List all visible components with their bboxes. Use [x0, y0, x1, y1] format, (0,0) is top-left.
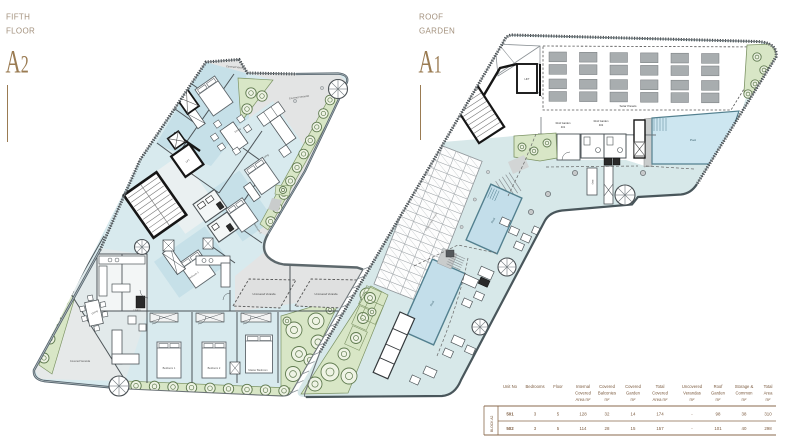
- svg-text:Unit No: Unit No: [503, 384, 518, 389]
- svg-text:Roof Garden: Roof Garden: [556, 121, 571, 125]
- svg-text:Area m²: Area m²: [653, 397, 668, 402]
- svg-text:3: 3: [534, 412, 537, 417]
- svg-text:Common: Common: [736, 390, 754, 395]
- svg-text:Balconies: Balconies: [598, 390, 616, 395]
- svg-text:5: 5: [557, 412, 560, 417]
- svg-text:Living: Living: [134, 308, 141, 312]
- svg-text:157: 157: [656, 426, 664, 431]
- svg-text:Garden: Garden: [626, 390, 641, 395]
- svg-text:502: 502: [506, 426, 514, 431]
- svg-text:Pool: Pool: [690, 138, 696, 142]
- svg-text:Covered: Covered: [652, 390, 668, 395]
- svg-text:Area: Area: [764, 390, 774, 395]
- svg-text:m²: m²: [766, 397, 771, 402]
- svg-text:m²: m²: [716, 397, 721, 402]
- svg-text:38: 38: [742, 412, 747, 417]
- svg-text:Solar Panels: Solar Panels: [619, 104, 637, 108]
- svg-text:32: 32: [605, 412, 610, 417]
- svg-text:BBQ: BBQ: [591, 180, 593, 185]
- svg-text:-: -: [691, 412, 693, 417]
- svg-text:LIFT: LIFT: [525, 78, 530, 81]
- svg-text:15: 15: [631, 426, 636, 431]
- svg-text:128: 128: [579, 412, 587, 417]
- svg-text:174: 174: [656, 412, 664, 417]
- svg-text:Bedroom 1: Bedroom 1: [163, 366, 176, 370]
- svg-text:Master Bedroom: Master Bedroom: [248, 368, 267, 372]
- svg-text:28: 28: [605, 426, 610, 431]
- svg-text:Total: Total: [656, 384, 665, 389]
- svg-text:ROOF: ROOF: [419, 13, 443, 22]
- svg-text:Covered: Covered: [575, 390, 591, 395]
- svg-text:Covered: Covered: [625, 384, 641, 389]
- svg-text:m²: m²: [690, 397, 695, 402]
- svg-text:14: 14: [631, 412, 636, 417]
- svg-text:298: 298: [764, 426, 772, 431]
- svg-text:3: 3: [534, 426, 537, 431]
- svg-text:5: 5: [557, 426, 560, 431]
- svg-text:501: 501: [506, 412, 514, 417]
- svg-text:A2: A2: [6, 43, 29, 80]
- svg-text:401: 401: [561, 125, 566, 129]
- svg-text:FLOOR: FLOOR: [6, 27, 35, 36]
- svg-text:Roof Garden: Roof Garden: [594, 119, 609, 123]
- svg-text:Garden: Garden: [711, 390, 726, 395]
- svg-text:Storage &: Storage &: [735, 384, 754, 389]
- svg-text:-: -: [691, 426, 693, 431]
- svg-text:Internal: Internal: [576, 384, 590, 389]
- svg-text:Uncovered: Uncovered: [682, 384, 703, 389]
- svg-text:Uncovered Veranda: Uncovered Veranda: [253, 292, 276, 296]
- svg-text:m²: m²: [631, 397, 636, 402]
- svg-text:114: 114: [580, 426, 588, 431]
- svg-text:m²: m²: [742, 397, 747, 402]
- svg-text:Roof: Roof: [714, 384, 724, 389]
- svg-text:98: 98: [716, 412, 721, 417]
- svg-text:BLOCK A2: BLOCK A2: [490, 415, 494, 432]
- svg-text:FIFTH: FIFTH: [6, 13, 30, 22]
- svg-text:Bedrooms: Bedrooms: [525, 384, 544, 389]
- svg-text:Verandas: Verandas: [683, 390, 701, 395]
- svg-text:101: 101: [714, 426, 722, 431]
- svg-text:m²: m²: [605, 397, 610, 402]
- svg-text:Covered: Covered: [599, 384, 615, 389]
- svg-text:40: 40: [742, 426, 747, 431]
- svg-text:Floor: Floor: [553, 384, 563, 389]
- svg-text:Total: Total: [764, 384, 773, 389]
- svg-text:310: 310: [764, 412, 772, 417]
- svg-text:GARDEN: GARDEN: [419, 27, 455, 36]
- svg-text:402: 402: [599, 123, 604, 127]
- svg-text:A1: A1: [419, 43, 442, 80]
- svg-text:Covered Veranda: Covered Veranda: [70, 359, 91, 363]
- svg-text:Uncovered Veranda: Uncovered Veranda: [315, 292, 338, 296]
- svg-text:Bedroom 2: Bedroom 2: [208, 366, 221, 370]
- svg-text:Area m²: Area m²: [576, 397, 591, 402]
